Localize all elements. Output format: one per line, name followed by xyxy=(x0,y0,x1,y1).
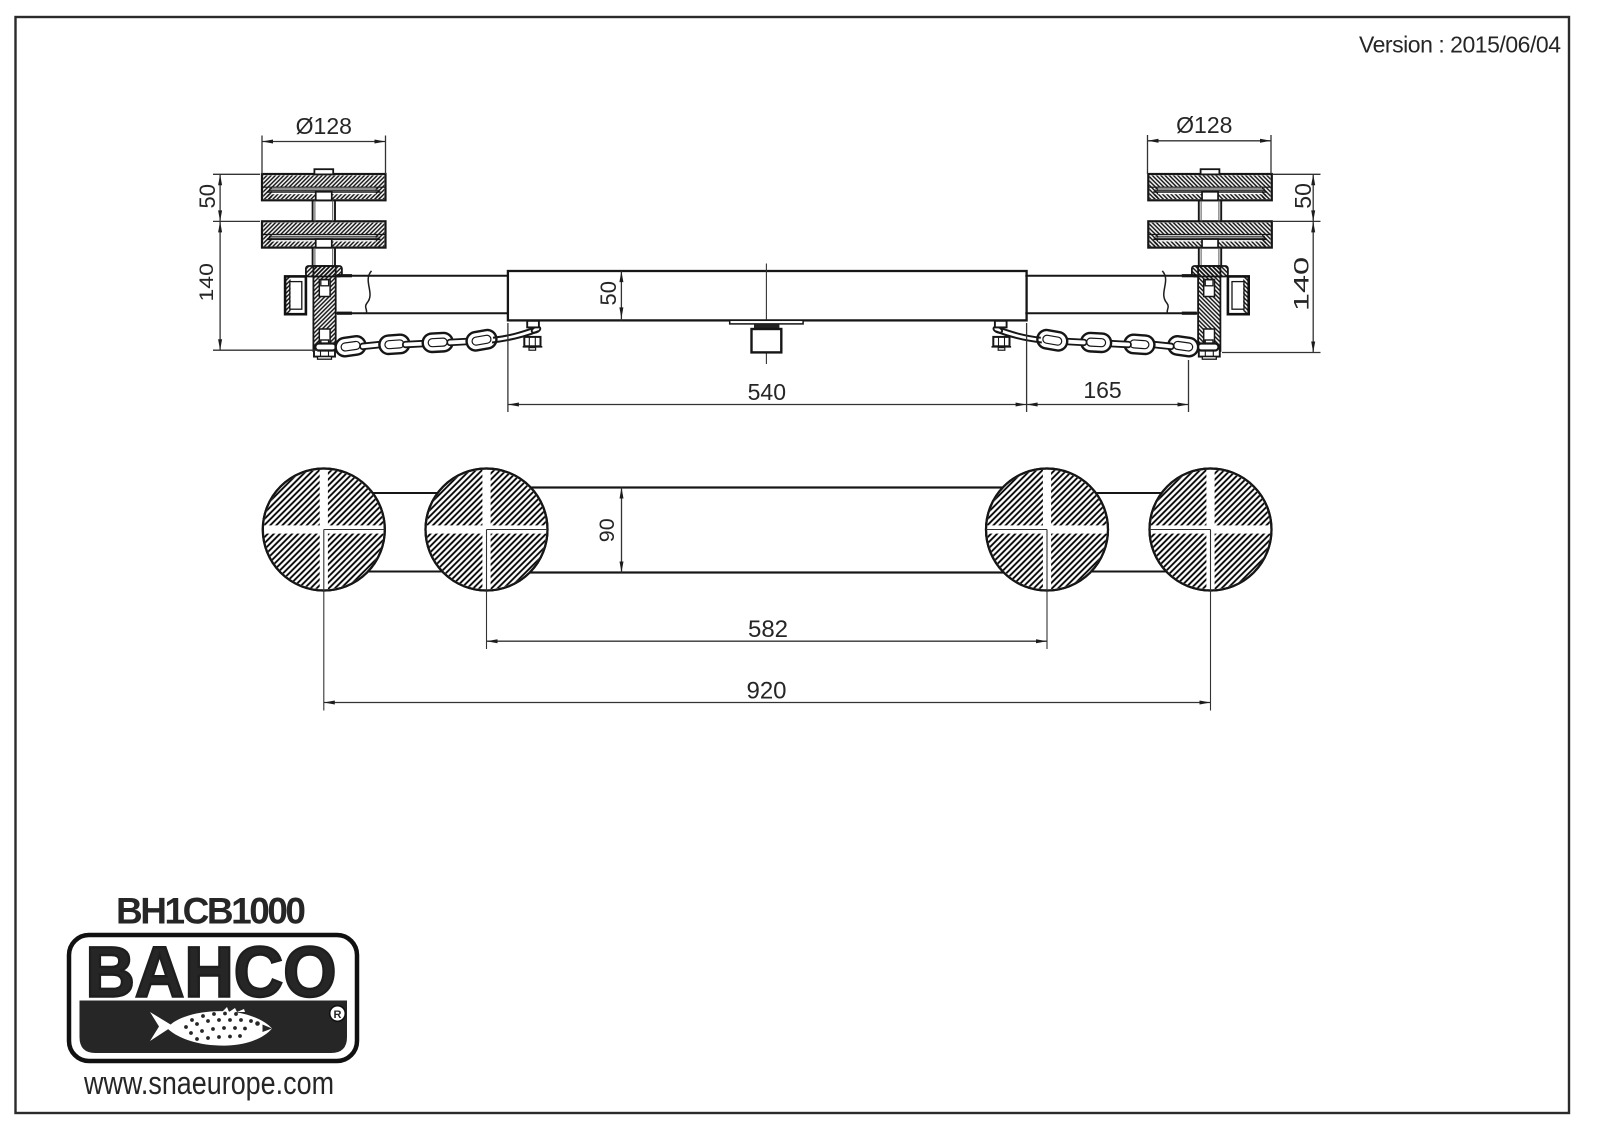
svg-text:50: 50 xyxy=(1290,183,1316,209)
svg-text:540: 540 xyxy=(748,379,786,405)
svg-text:140: 140 xyxy=(196,263,218,302)
svg-text:582: 582 xyxy=(748,616,788,643)
svg-text:50: 50 xyxy=(195,184,220,208)
svg-text:R: R xyxy=(334,1009,342,1021)
svg-text:www.snaeurope.com: www.snaeurope.com xyxy=(83,1065,334,1101)
svg-text:Ø128: Ø128 xyxy=(1176,112,1232,138)
svg-text:BH1CB1000: BH1CB1000 xyxy=(116,891,306,932)
svg-text:90: 90 xyxy=(595,518,619,542)
svg-text:Ø128: Ø128 xyxy=(296,113,352,139)
svg-text:Version : 2015/06/04: Version : 2015/06/04 xyxy=(1359,32,1561,58)
svg-text:920: 920 xyxy=(746,678,786,705)
svg-text:140: 140 xyxy=(1289,257,1313,311)
svg-text:50: 50 xyxy=(596,281,621,305)
svg-text:165: 165 xyxy=(1083,377,1121,403)
